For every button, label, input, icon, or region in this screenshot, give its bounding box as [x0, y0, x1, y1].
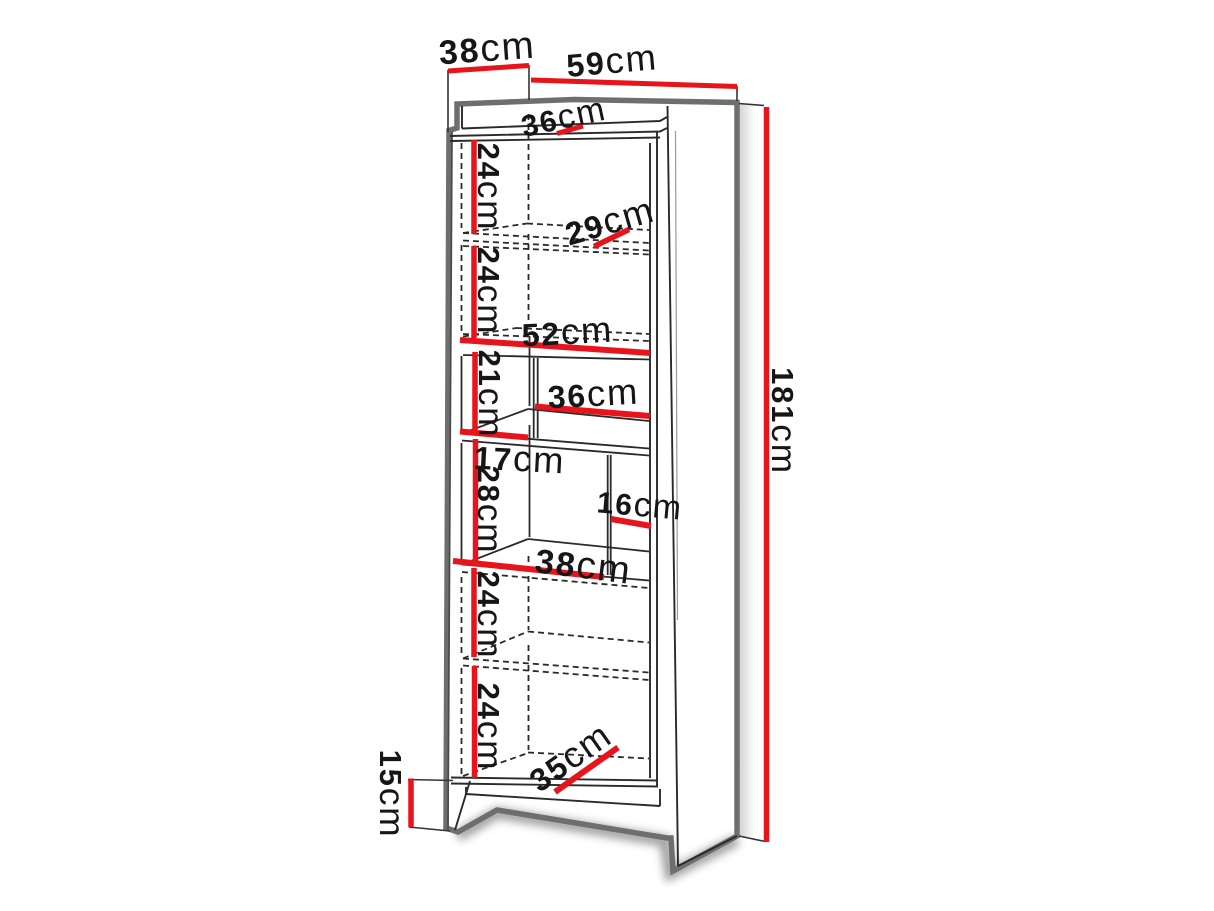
svg-text:59cm: 59cm — [565, 36, 660, 85]
svg-text:24cm: 24cm — [470, 247, 509, 336]
svg-text:24cm: 24cm — [470, 683, 509, 772]
svg-text:36cm: 36cm — [518, 90, 610, 145]
svg-text:52cm: 52cm — [521, 309, 614, 355]
svg-text:38cm: 38cm — [533, 538, 634, 592]
svg-text:15cm: 15cm — [372, 750, 411, 839]
svg-text:36cm: 36cm — [547, 371, 640, 417]
svg-text:35cm: 35cm — [521, 714, 619, 800]
svg-text:24cm: 24cm — [470, 143, 509, 232]
svg-text:28cm: 28cm — [470, 466, 509, 555]
svg-text:16cm: 16cm — [595, 482, 684, 527]
svg-text:181cm: 181cm — [764, 367, 803, 475]
svg-text:38cm: 38cm — [437, 24, 536, 74]
svg-text:24cm: 24cm — [470, 571, 509, 660]
svg-text:21cm: 21cm — [471, 350, 510, 439]
